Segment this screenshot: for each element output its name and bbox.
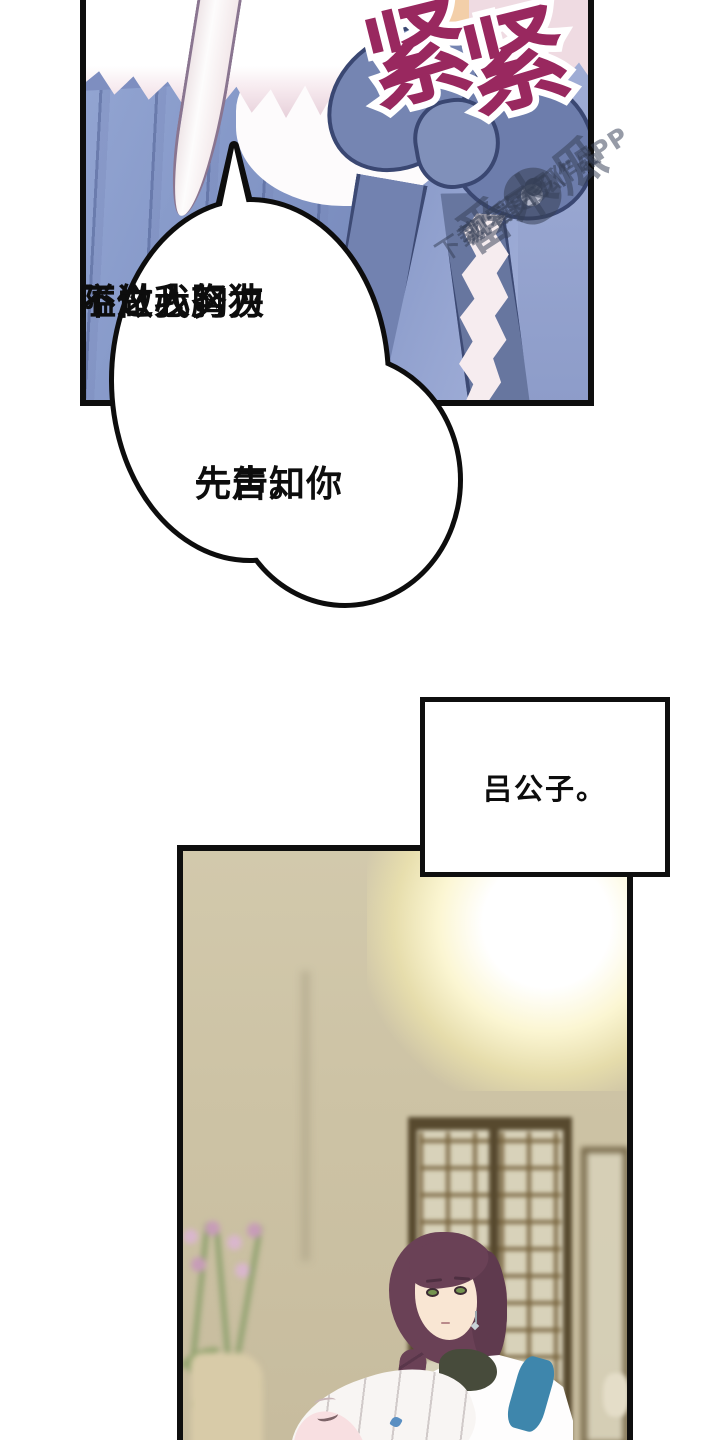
woman-eye — [426, 1288, 439, 1297]
small-vase — [603, 1373, 629, 1417]
light-flare — [367, 845, 633, 1091]
plant-blossom — [205, 1221, 220, 1236]
woman-mouth — [441, 1322, 450, 1324]
bubble-line: 一声。 — [195, 462, 306, 507]
bubble-line: 隘之人， — [80, 274, 228, 331]
plant-blossom — [183, 1229, 198, 1244]
plant-pot — [191, 1353, 263, 1440]
plant-blossom — [227, 1235, 242, 1250]
sfx-char: 紧 — [452, 0, 580, 127]
caption-box: 吕公子。 — [420, 697, 670, 877]
woman-eye — [454, 1286, 467, 1295]
panel-bottom — [177, 845, 633, 1440]
plant-blossom — [247, 1223, 262, 1238]
plant-blossom — [191, 1257, 206, 1272]
comic-page: 番木瓜 下载“番木瓜”APP 观看更多作品 紧 紧 紧 紧 不过我努力 不做心胸… — [0, 0, 720, 1440]
speech-bubble — [80, 130, 480, 630]
caption-text: 吕公子。 — [483, 766, 607, 808]
wall-corner-shadow — [301, 971, 310, 1261]
plant-blossom — [235, 1263, 250, 1278]
